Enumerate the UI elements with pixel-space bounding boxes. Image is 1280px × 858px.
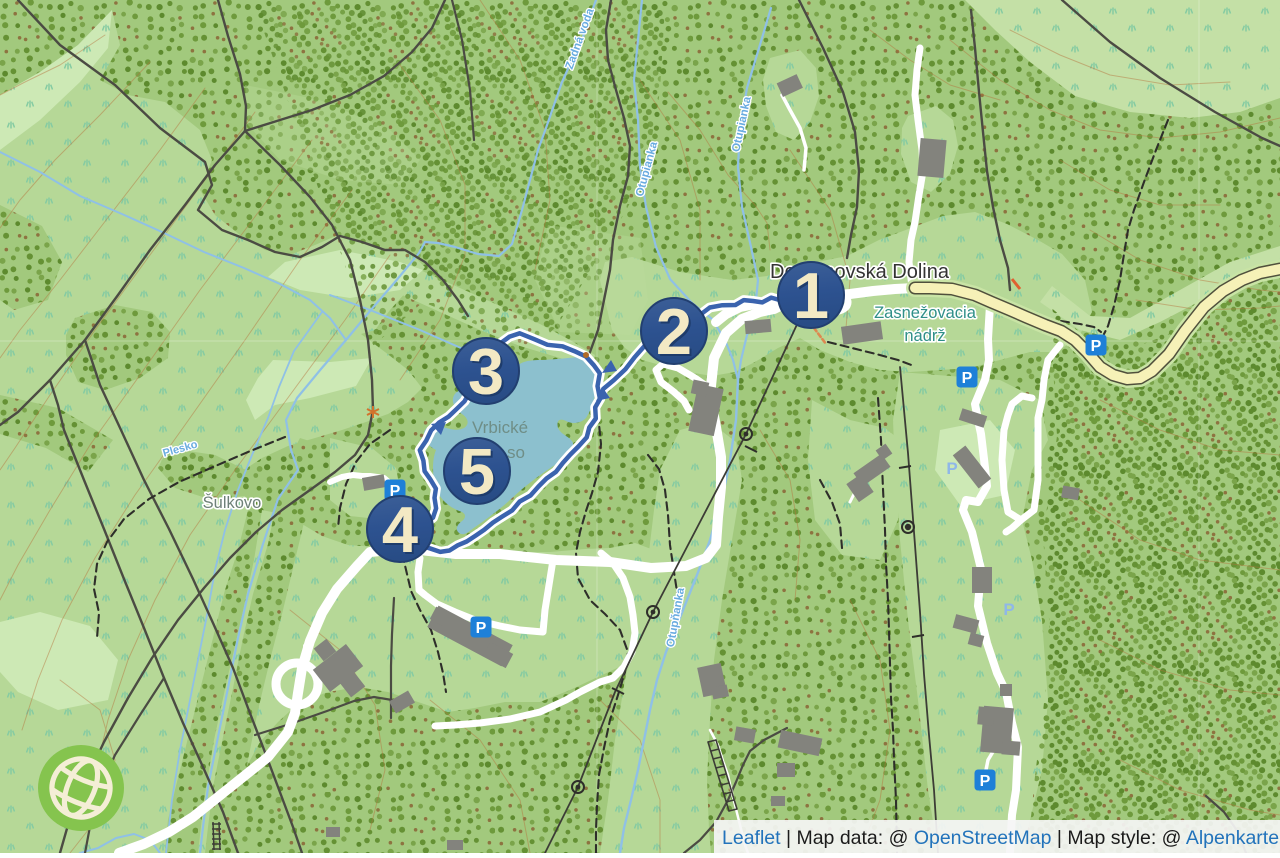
- svg-text:Leaflet | Map data: @ OpenStre: Leaflet | Map data: @ OpenStreetMap | Ma…: [722, 827, 1279, 849]
- svg-text:2: 2: [656, 295, 692, 368]
- svg-text:Zasnežovacia: Zasnežovacia: [874, 304, 977, 322]
- svg-text:so: so: [507, 443, 525, 462]
- svg-text:5: 5: [459, 435, 495, 508]
- svg-text:P: P: [476, 620, 487, 637]
- svg-text:P: P: [1091, 338, 1102, 355]
- svg-text:P: P: [1003, 600, 1014, 619]
- svg-text:P: P: [962, 370, 973, 387]
- svg-text:P: P: [946, 459, 957, 478]
- svg-text:nádrž: nádrž: [904, 327, 945, 345]
- svg-text:Šulkovo: Šulkovo: [203, 493, 262, 512]
- svg-text:P: P: [980, 773, 991, 790]
- svg-text:1: 1: [793, 259, 829, 332]
- svg-text:4: 4: [382, 493, 418, 566]
- svg-text:3: 3: [468, 335, 504, 408]
